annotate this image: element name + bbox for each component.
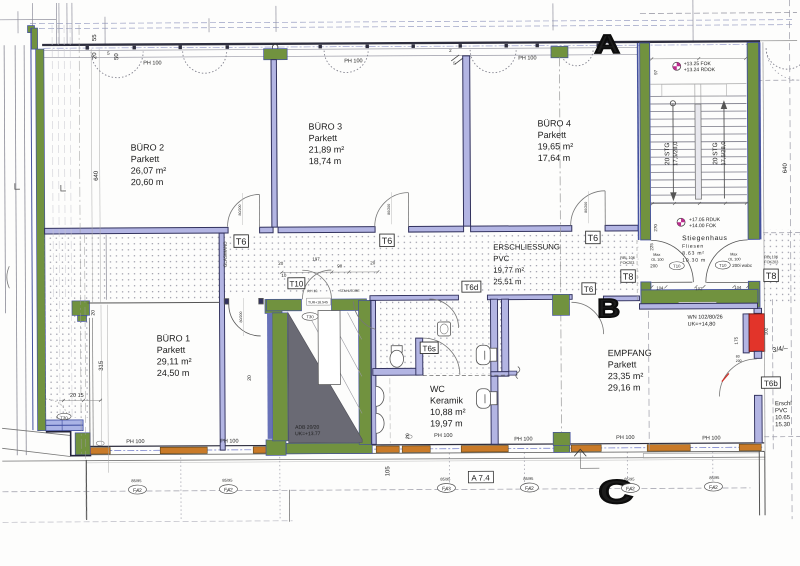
svg-text:T6b: T6b xyxy=(764,379,778,388)
svg-text:Erschl: Erschl xyxy=(775,401,792,407)
svg-text:23,35 m²: 23,35 m² xyxy=(608,371,644,381)
svg-text:WN 102/80/26: WN 102/80/26 xyxy=(688,315,723,321)
svg-text:20 STG: 20 STG xyxy=(712,142,719,164)
svg-text:19,65 m²: 19,65 m² xyxy=(538,141,574,151)
svg-text:85/95: 85/95 xyxy=(222,478,233,483)
svg-text:80: 80 xyxy=(736,354,740,358)
svg-text:20: 20 xyxy=(278,261,284,266)
svg-text:80/200: 80/200 xyxy=(238,205,242,216)
svg-text:UK=+13.77: UK=+13.77 xyxy=(295,431,321,437)
svg-text:50: 50 xyxy=(114,53,120,60)
svg-text:T6d: T6d xyxy=(464,283,478,292)
svg-text:FOK203: FOK203 xyxy=(620,261,634,265)
svg-text:20 15: 20 15 xyxy=(70,393,84,399)
svg-text:PH 100: PH 100 xyxy=(220,439,238,445)
svg-text:20,60 m: 20,60 m xyxy=(131,177,164,187)
svg-text:25,51 m: 25,51 m xyxy=(493,277,521,286)
svg-text:PH 100: PH 100 xyxy=(143,60,161,66)
svg-text:PVC: PVC xyxy=(775,408,788,414)
svg-text:640: 640 xyxy=(783,163,789,174)
svg-text:ERSCHLIESSUNG: ERSCHLIESSUNG xyxy=(493,242,560,251)
svg-text:10.65: 10.65 xyxy=(775,415,791,421)
svg-text:T6: T6 xyxy=(236,237,247,247)
svg-text:T10: T10 xyxy=(719,263,727,268)
svg-text:102: 102 xyxy=(764,327,769,335)
svg-text:OL 100: OL 100 xyxy=(651,258,663,262)
svg-text:T8: T8 xyxy=(623,272,634,282)
svg-text:EMPFANG: EMPFANG xyxy=(608,348,652,358)
svg-text:Parkett: Parkett xyxy=(157,345,186,355)
svg-text:FOK203: FOK203 xyxy=(764,260,778,264)
svg-text:85/95: 85/95 xyxy=(709,475,720,480)
svg-text:270: 270 xyxy=(653,224,658,232)
svg-text:21,89 m²: 21,89 m² xyxy=(309,144,345,154)
svg-text:104: 104 xyxy=(656,285,664,290)
svg-text:PH 100: PH 100 xyxy=(434,433,452,439)
svg-text:PH 100: PH 100 xyxy=(514,437,532,443)
svg-text:85/95: 85/95 xyxy=(440,476,451,481)
svg-text:85/95: 85/95 xyxy=(523,476,534,481)
svg-text:17,5/28,0: 17,5/28,0 xyxy=(721,141,727,165)
svg-text:ADB 20/20: ADB 20/20 xyxy=(295,425,319,431)
svg-text:RBL 106: RBL 106 xyxy=(620,256,635,260)
svg-text:B: B xyxy=(597,294,620,323)
svg-text:19,77 m²: 19,77 m² xyxy=(493,266,524,275)
svg-text:T10: T10 xyxy=(289,280,303,289)
svg-text:315: 315 xyxy=(99,360,105,371)
svg-text:Fliesen: Fliesen xyxy=(682,244,704,250)
svg-text:29,11 m²: 29,11 m² xyxy=(157,356,192,366)
svg-text:PH 100: PH 100 xyxy=(126,439,144,445)
svg-text:17,64 m: 17,64 m xyxy=(538,153,571,163)
svg-text:20: 20 xyxy=(405,433,411,439)
svg-text:RH 10.: RH 10. xyxy=(307,289,318,293)
svg-text:26,07 m²: 26,07 m² xyxy=(131,165,167,175)
svg-text:104: 104 xyxy=(734,285,742,290)
svg-text:Keramik: Keramik xyxy=(430,395,464,405)
svg-text:GLASWAND: GLASWAND xyxy=(223,241,228,267)
svg-text:T8: T8 xyxy=(766,271,777,281)
svg-text:20: 20 xyxy=(247,375,253,381)
svg-text:102: 102 xyxy=(695,286,703,291)
svg-text:175: 175 xyxy=(734,336,739,344)
svg-text:10,88 m²: 10,88 m² xyxy=(430,407,466,417)
svg-text:+14.00 FOK: +14.00 FOK xyxy=(689,223,717,229)
svg-text:85/95: 85/95 xyxy=(131,478,142,483)
svg-text:PH 100: PH 100 xyxy=(344,58,362,64)
svg-text:TUR+18.545: TUR+18.545 xyxy=(308,300,328,304)
svg-text:Parkett: Parkett xyxy=(538,130,567,140)
svg-text:10: 10 xyxy=(281,273,287,278)
svg-text:BÜRO 4: BÜRO 4 xyxy=(538,118,572,128)
svg-text:T30: T30 xyxy=(60,415,68,420)
svg-text:A 7.4: A 7.4 xyxy=(471,474,490,483)
svg-text:225: 225 xyxy=(649,243,654,251)
svg-text:T6s: T6s xyxy=(423,344,436,353)
svg-text:Max: Max xyxy=(653,253,660,257)
svg-text:RBt 106: RBt 106 xyxy=(764,255,778,259)
svg-text:55: 55 xyxy=(92,34,98,41)
svg-text:PH 100: PH 100 xyxy=(702,436,720,442)
svg-text:PH 100: PH 100 xyxy=(518,55,536,61)
svg-text:PVC: PVC xyxy=(493,254,509,263)
svg-text:200: 200 xyxy=(650,263,658,268)
svg-text:18,74 m: 18,74 m xyxy=(309,156,342,166)
svg-text:Parkett: Parkett xyxy=(131,154,160,164)
svg-text:20: 20 xyxy=(92,52,98,59)
svg-text:20 STG: 20 STG xyxy=(664,143,671,165)
svg-text:Max: Max xyxy=(730,252,737,256)
svg-text:200: 200 xyxy=(736,359,742,363)
svg-text:24,50 m: 24,50 m xyxy=(157,368,190,378)
svg-text:STAHLTÜRE: STAHLTÜRE xyxy=(339,289,360,293)
svg-text:T6: T6 xyxy=(382,236,393,246)
svg-text:BÜRO 2: BÜRO 2 xyxy=(131,142,165,152)
svg-text:20: 20 xyxy=(370,260,376,265)
svg-text:T30: T30 xyxy=(306,314,314,319)
svg-text:BÜRO 3: BÜRO 3 xyxy=(309,122,343,132)
svg-text:80/200: 80/200 xyxy=(584,202,588,213)
svg-text:640: 640 xyxy=(94,170,100,181)
svg-text:A: A xyxy=(595,29,620,59)
svg-text:85/95: 85/95 xyxy=(624,476,635,481)
svg-text:Parkett: Parkett xyxy=(608,359,637,369)
svg-text:PH 100: PH 100 xyxy=(616,435,634,441)
svg-text:200i wabc: 200i wabc xyxy=(732,263,753,268)
svg-text:Stiegenhaus: Stiegenhaus xyxy=(682,235,728,242)
svg-text:T6: T6 xyxy=(588,233,599,243)
svg-text:T10: T10 xyxy=(673,264,681,269)
svg-text:17,5/28,0: 17,5/28,0 xyxy=(673,142,679,166)
svg-text:OL 100: OL 100 xyxy=(728,257,740,261)
svg-text:97: 97 xyxy=(653,69,658,75)
svg-text:105: 105 xyxy=(385,466,391,477)
svg-text:197: 197 xyxy=(312,257,320,262)
svg-text:WC: WC xyxy=(430,384,446,394)
svg-text:Parkett: Parkett xyxy=(309,133,338,143)
svg-text:19,97 m: 19,97 m xyxy=(430,418,463,428)
svg-text:UK=+14,80: UK=+14,80 xyxy=(688,322,716,328)
svg-text:80/200: 80/200 xyxy=(239,312,243,323)
svg-text:29,16 m: 29,16 m xyxy=(608,382,641,392)
svg-text:20: 20 xyxy=(91,310,97,316)
svg-text:+13.24 RDOK: +13.24 RDOK xyxy=(684,67,716,73)
svg-text:15.30: 15.30 xyxy=(775,422,791,428)
svg-text:T6: T6 xyxy=(584,285,594,294)
svg-text:8.63 m²: 8.63 m² xyxy=(682,251,705,257)
svg-text:BÜRO 1: BÜRO 1 xyxy=(157,333,191,343)
svg-text:80/200: 80/200 xyxy=(387,204,391,215)
svg-text:98: 98 xyxy=(337,264,343,269)
